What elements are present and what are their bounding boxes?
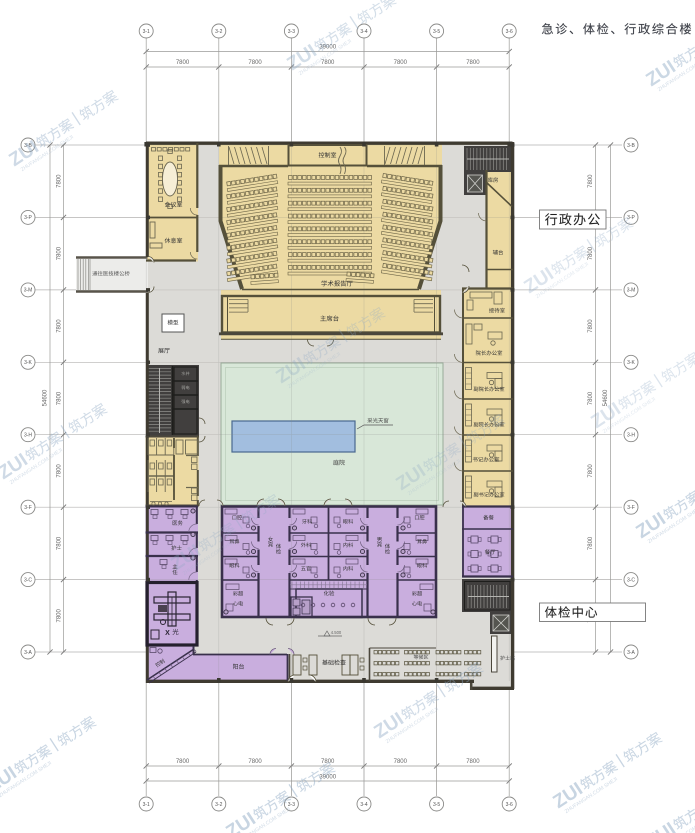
svg-text:4.500: 4.500	[331, 630, 342, 635]
svg-text:3-K: 3-K	[627, 360, 635, 366]
svg-text:3-3: 3-3	[288, 802, 295, 808]
svg-text:3-H: 3-H	[627, 433, 635, 439]
svg-text:7800: 7800	[57, 319, 63, 333]
svg-text:7800: 7800	[57, 464, 63, 478]
svg-text:3-5: 3-5	[433, 802, 440, 808]
svg-text:3-F: 3-F	[24, 505, 32, 511]
svg-text:3-C: 3-C	[627, 577, 635, 583]
svg-text:7800: 7800	[248, 60, 262, 66]
svg-text:3-A: 3-A	[24, 650, 32, 656]
svg-text:3-5: 3-5	[433, 29, 440, 35]
svg-text:3-M: 3-M	[24, 288, 33, 294]
svg-text:7800: 7800	[176, 759, 190, 765]
svg-text:3-A: 3-A	[627, 650, 635, 656]
svg-text:3-H: 3-H	[24, 433, 32, 439]
svg-text:3-1: 3-1	[143, 802, 150, 808]
svg-text:3-2: 3-2	[215, 802, 222, 808]
svg-text:54600: 54600	[43, 389, 49, 406]
svg-text:3-B: 3-B	[627, 143, 635, 149]
svg-text:7800: 7800	[248, 759, 262, 765]
svg-text:3-3: 3-3	[288, 29, 295, 35]
svg-text:7800: 7800	[588, 319, 594, 333]
svg-text:7800: 7800	[321, 759, 335, 765]
svg-text:7800: 7800	[57, 536, 63, 550]
svg-text:7800: 7800	[588, 464, 594, 478]
svg-text:7800: 7800	[588, 536, 594, 550]
svg-text:7800: 7800	[176, 60, 190, 66]
svg-text:3-1: 3-1	[143, 29, 150, 35]
svg-text:7800: 7800	[394, 759, 408, 765]
svg-text:7800: 7800	[57, 391, 63, 405]
svg-text:7800: 7800	[394, 60, 408, 66]
svg-text:3-M: 3-M	[627, 288, 636, 294]
svg-text:3-6: 3-6	[506, 802, 513, 808]
svg-text:7800: 7800	[588, 391, 594, 405]
svg-text:3-P: 3-P	[24, 215, 32, 221]
svg-text:3-2: 3-2	[215, 29, 222, 35]
svg-text:3-K: 3-K	[24, 360, 32, 366]
svg-text:3-F: 3-F	[627, 505, 635, 511]
svg-text:3-6: 3-6	[506, 29, 513, 35]
svg-text:7800: 7800	[57, 246, 63, 260]
svg-text:7800: 7800	[466, 60, 480, 66]
svg-text:3-4: 3-4	[360, 29, 367, 35]
svg-text:7800: 7800	[466, 759, 480, 765]
svg-text:3-P: 3-P	[627, 215, 635, 221]
svg-text:7800: 7800	[588, 174, 594, 188]
svg-text:7800: 7800	[57, 608, 63, 622]
svg-text:7800: 7800	[57, 174, 63, 188]
svg-text:3-C: 3-C	[24, 577, 32, 583]
svg-text:3-4: 3-4	[360, 802, 367, 808]
svg-text:39000: 39000	[319, 775, 336, 781]
svg-text:X: X	[165, 630, 170, 637]
